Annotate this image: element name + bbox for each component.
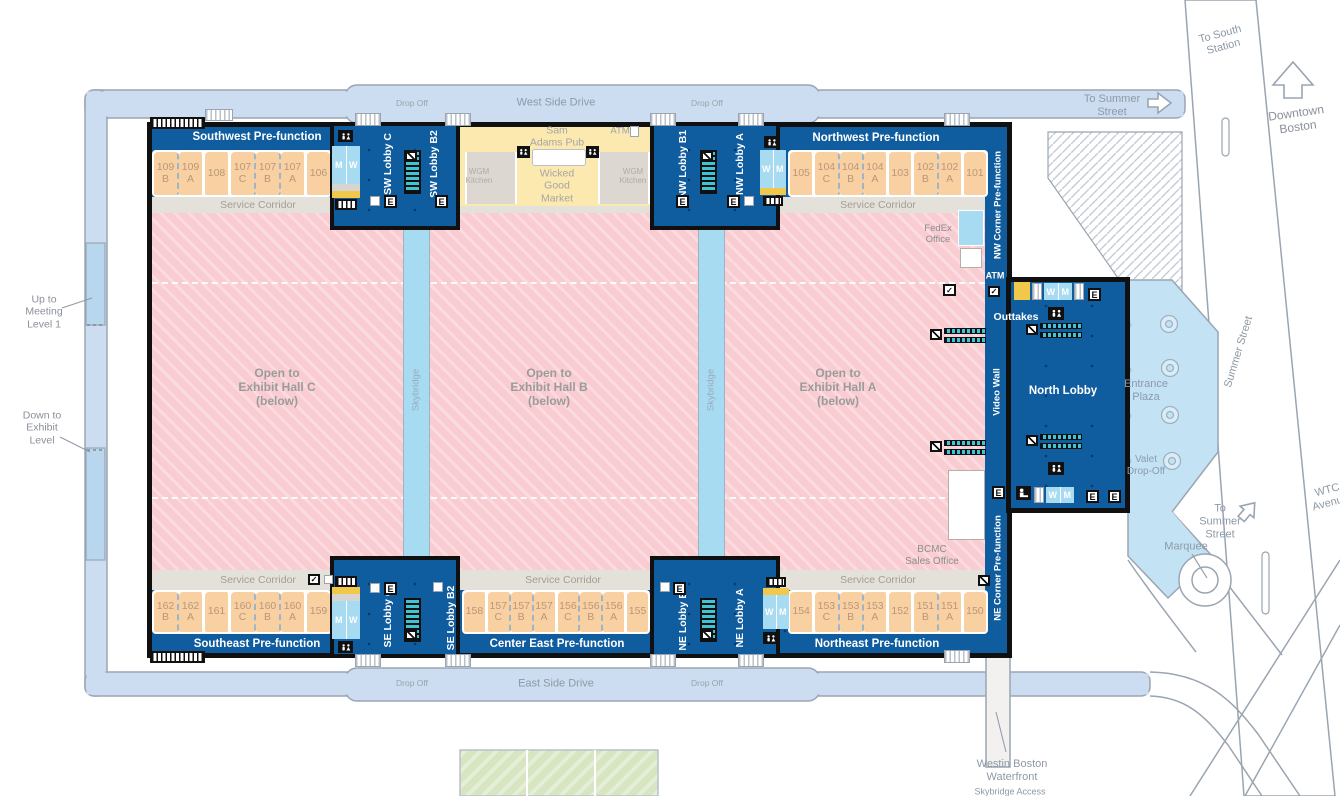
room-cell: 151 A xyxy=(939,592,964,632)
restroom-mw: WM xyxy=(1044,283,1072,300)
ne-corner-prefunction-label: NE Corner Pre-function xyxy=(993,515,1004,621)
stairs-icon xyxy=(445,654,471,667)
room-number: 152 xyxy=(891,606,909,617)
room-cell: 160 B xyxy=(256,592,281,632)
sw-lobby-c-label: SW Lobby C xyxy=(382,133,394,195)
exhibit-hall-opening xyxy=(152,213,985,570)
elevator-icon: E xyxy=(1108,490,1121,503)
stairs-icon xyxy=(763,196,783,206)
ne-lobby-b1-label: NE Lobby B1 xyxy=(677,585,689,650)
room-cell: 151 B xyxy=(914,592,938,632)
elevator-icon: E xyxy=(992,486,1005,499)
ramp-down-exhibit xyxy=(60,437,105,560)
elevator-icon: E xyxy=(435,195,448,208)
restroom-men: M xyxy=(332,146,346,184)
nw-corner-prefunction-label: NW Corner Pre-function xyxy=(993,151,1004,259)
escalator-direction-icon xyxy=(405,151,417,161)
room-cell: 153 A xyxy=(864,592,889,632)
room-number: 159 xyxy=(310,606,328,617)
back-of-house-rooms xyxy=(948,470,985,540)
utility-icon xyxy=(433,582,443,592)
landing-accent xyxy=(760,188,786,195)
escalator-direction-icon xyxy=(930,441,942,452)
restroom-icon xyxy=(586,146,599,158)
room-group-bottom-left: 162 B162 A161160 C160 B160 A159 xyxy=(152,590,332,634)
room-cell: 150 xyxy=(964,592,986,632)
room-cell: 160 C xyxy=(231,592,256,632)
stairs-icon xyxy=(650,654,676,667)
room-number: 104 A xyxy=(866,162,884,184)
info-desk-icon xyxy=(1016,486,1031,500)
stairs-icon xyxy=(445,113,471,126)
stairs-icon xyxy=(1074,283,1084,300)
video-wall-label: Video Wall xyxy=(992,368,1003,416)
restroom-mw: MW xyxy=(332,601,360,639)
stairs-icon xyxy=(355,113,381,126)
room-number: 157 C xyxy=(490,601,508,623)
room-number: 108 xyxy=(208,168,226,179)
escalator-direction-icon xyxy=(1026,435,1038,446)
room-cell: 156 A xyxy=(603,592,627,632)
escalator-direction-icon xyxy=(405,630,417,640)
escalator-icon xyxy=(944,337,986,343)
room-cell: 156 C xyxy=(558,592,581,632)
elevator-icon: E xyxy=(384,582,397,595)
escalator-direction-icon xyxy=(978,575,990,586)
skybridge-label: Skybridge xyxy=(411,369,422,411)
escalator-icon xyxy=(944,328,986,334)
room-number: 153 B xyxy=(842,601,860,623)
room-group-top-right: 105104 C104 B104 A103102 B102 A101 xyxy=(788,150,988,197)
nw-lobby-b1-label: NW Lobby B1 xyxy=(677,130,689,198)
check-icon: ✓ xyxy=(943,284,956,296)
room-cell: 157 C xyxy=(488,592,511,632)
restroom-icon xyxy=(763,632,778,644)
restroom-men: M xyxy=(332,601,346,639)
utility-icon xyxy=(370,583,380,593)
room-cell: 153 C xyxy=(815,592,839,632)
restroom-icon xyxy=(1048,307,1064,320)
stairs-icon xyxy=(335,199,357,210)
room-number: 107 A xyxy=(284,162,302,184)
escalator-bank xyxy=(150,651,205,663)
restroom-mw: WM xyxy=(760,150,786,188)
room-number: 107 C xyxy=(234,162,252,184)
room-cell: 159 xyxy=(307,592,330,632)
room-cell: 105 xyxy=(790,152,815,195)
fedex-office-room xyxy=(958,210,984,246)
room-number: 151 B xyxy=(917,601,935,623)
restroom-women: W xyxy=(346,601,361,639)
room-number: 161 xyxy=(208,606,226,617)
room-number: 156 A xyxy=(605,601,623,623)
room-number: 154 xyxy=(792,606,810,617)
utility-icon xyxy=(324,575,333,584)
stairs-icon xyxy=(1032,283,1042,300)
landing xyxy=(332,594,360,601)
room-cell: 157 A xyxy=(534,592,558,632)
restroom-icon xyxy=(764,136,779,148)
stairs-icon xyxy=(738,654,764,667)
elevator-icon: E xyxy=(727,195,740,208)
landing-accent xyxy=(332,587,360,594)
room-number: 103 xyxy=(891,168,909,179)
room-cell: 153 B xyxy=(840,592,864,632)
room-number: 150 xyxy=(966,606,984,617)
room-cell: 108 xyxy=(205,152,231,195)
room-number: 109 B xyxy=(157,162,175,184)
restroom-mw: MW xyxy=(332,146,360,184)
room-group-bottom-right: 154153 C153 B153 A152151 B151 A150 xyxy=(788,590,988,634)
elevator-icon: E xyxy=(676,195,689,208)
bcec-floor-plan: West Side Drive East Side Drive Drop Off… xyxy=(0,0,1340,796)
hatched-drive-area xyxy=(1048,132,1182,298)
restroom-women: W xyxy=(1044,283,1058,300)
escalator-icon xyxy=(944,449,986,455)
room-number: 162 B xyxy=(157,601,175,623)
service-corridor-south xyxy=(152,570,985,590)
landing-accent xyxy=(763,588,789,595)
room-cell: 158 xyxy=(464,592,488,632)
restroom-women: W xyxy=(1046,487,1060,503)
room-number: 157 A xyxy=(535,601,553,623)
restroom-icon xyxy=(338,641,353,653)
hall-divider-line xyxy=(152,282,985,284)
room-cell: 106 xyxy=(307,152,330,195)
wgm-kitchen-east xyxy=(598,152,650,204)
room-number: 160 A xyxy=(284,601,302,623)
restroom-men: M xyxy=(773,150,787,188)
stairs-icon xyxy=(944,113,970,126)
room-number: 158 xyxy=(466,606,484,617)
atm-icon xyxy=(630,126,639,137)
room-number: 156 B xyxy=(582,601,600,623)
room-number: 160 B xyxy=(259,601,277,623)
escalator-icon xyxy=(1040,434,1082,440)
escalator-direction-icon xyxy=(701,630,713,640)
room-number: 153 C xyxy=(818,601,836,623)
restroom-icon xyxy=(1048,462,1064,475)
room-cell: 155 xyxy=(627,592,648,632)
elevator-icon: E xyxy=(1086,490,1099,503)
room-number: 101 xyxy=(966,168,984,179)
room-number: 156 C xyxy=(559,601,577,623)
landing-accent xyxy=(1014,282,1030,300)
room-group-top-left: 109 B109 A108107 C107 B107 A106 xyxy=(152,150,332,197)
westin-skybridge xyxy=(986,655,1010,767)
room-group-bottom-center: 158157 C157 B157 A156 C156 B156 A155 xyxy=(462,590,650,634)
se-lobby-b2-label: SE Lobby B2 xyxy=(445,586,457,651)
escalator-icon xyxy=(944,440,986,446)
stairs-icon xyxy=(1034,487,1044,503)
nw-lobby-a-label: NW Lobby A xyxy=(734,133,746,195)
room-cell: 152 xyxy=(889,592,914,632)
escalator-direction-icon xyxy=(701,151,713,161)
escalator-icon xyxy=(1040,443,1082,449)
check-icon: ✓ xyxy=(308,574,320,585)
restroom-men: M xyxy=(776,595,790,629)
room-number: 151 A xyxy=(941,601,959,623)
room-cell: 107 A xyxy=(281,152,307,195)
escalator-icon xyxy=(1040,323,1082,329)
room-cell: 104 A xyxy=(864,152,889,195)
marquee-circle xyxy=(1179,554,1231,606)
stairs-icon xyxy=(335,576,357,587)
room-cell: 104 C xyxy=(815,152,839,195)
north-lobby-block xyxy=(1006,277,1130,513)
restroom-mw: WM xyxy=(1046,487,1074,503)
stairs-icon xyxy=(355,654,381,667)
room-number: 109 A xyxy=(182,162,200,184)
elevator-icon: E xyxy=(384,195,397,208)
pub-bar-counter xyxy=(532,149,586,166)
escalator-direction-icon xyxy=(1026,324,1038,335)
restroom-icon xyxy=(517,146,530,158)
restroom-women: W xyxy=(763,595,776,629)
wgm-kitchen-west xyxy=(465,152,517,204)
utility-icon xyxy=(744,196,754,206)
elevator-icon: E xyxy=(673,582,686,595)
ne-lobby-a-label: NE Lobby A xyxy=(734,588,746,647)
room-number: 102 A xyxy=(941,162,959,184)
room-cell: 101 xyxy=(964,152,986,195)
restroom-icon xyxy=(338,130,353,142)
stairs-icon xyxy=(205,109,233,121)
se-lobby-c-label: SE Lobby C xyxy=(382,589,394,648)
room-number: 102 B xyxy=(917,162,935,184)
escalator-bank xyxy=(150,117,205,129)
room-cell: 157 B xyxy=(511,592,534,632)
room-cell: 109 B xyxy=(154,152,179,195)
room-cell: 154 xyxy=(790,592,815,632)
utility-icon xyxy=(370,196,380,206)
room-cell: 162 A xyxy=(179,592,205,632)
room-cell: 104 B xyxy=(840,152,864,195)
skybridge-label: Skybridge xyxy=(706,369,717,411)
landing-accent xyxy=(332,191,360,198)
stairs-icon xyxy=(650,113,676,126)
up-arrow-icon xyxy=(1273,62,1313,98)
utility-room xyxy=(960,248,982,268)
hall-divider-line xyxy=(152,497,985,499)
room-cell: 161 xyxy=(205,592,231,632)
room-cell: 160 A xyxy=(281,592,307,632)
room-number: 157 B xyxy=(512,601,530,623)
restroom-men: M xyxy=(1060,487,1075,503)
room-cell: 103 xyxy=(889,152,914,195)
room-cell: 162 B xyxy=(154,592,179,632)
restroom-mw: WM xyxy=(763,595,789,629)
elevator-icon: E xyxy=(1088,288,1101,301)
room-number: 105 xyxy=(792,168,810,179)
room-cell: 156 B xyxy=(580,592,603,632)
stairs-icon xyxy=(944,650,970,663)
restroom-women: W xyxy=(346,146,361,184)
sw-lobby-b2-label: SW Lobby B2 xyxy=(428,130,440,198)
room-number: 107 B xyxy=(259,162,277,184)
escalator-icon xyxy=(1040,332,1082,338)
room-number: 104 B xyxy=(842,162,860,184)
room-cell: 109 A xyxy=(179,152,205,195)
room-number: 155 xyxy=(629,606,647,617)
restroom-women: W xyxy=(760,150,773,188)
room-number: 162 A xyxy=(182,601,200,623)
room-number: 160 C xyxy=(234,601,252,623)
room-number: 104 C xyxy=(818,162,836,184)
escalator-direction-icon xyxy=(930,329,942,340)
utility-icon xyxy=(660,582,670,592)
room-cell: 107 C xyxy=(231,152,256,195)
room-number: 106 xyxy=(310,168,328,179)
landing xyxy=(332,184,360,191)
room-cell: 107 B xyxy=(256,152,281,195)
stairs-icon xyxy=(766,577,786,587)
ramp-up-meeting xyxy=(62,243,105,325)
restroom-men: M xyxy=(1058,283,1073,300)
room-cell: 102 A xyxy=(939,152,964,195)
room-number: 153 A xyxy=(866,601,884,623)
room-cell: 102 B xyxy=(914,152,938,195)
stairs-icon xyxy=(738,113,764,126)
check-icon: ✓ xyxy=(988,286,1000,297)
lawn xyxy=(460,750,658,796)
